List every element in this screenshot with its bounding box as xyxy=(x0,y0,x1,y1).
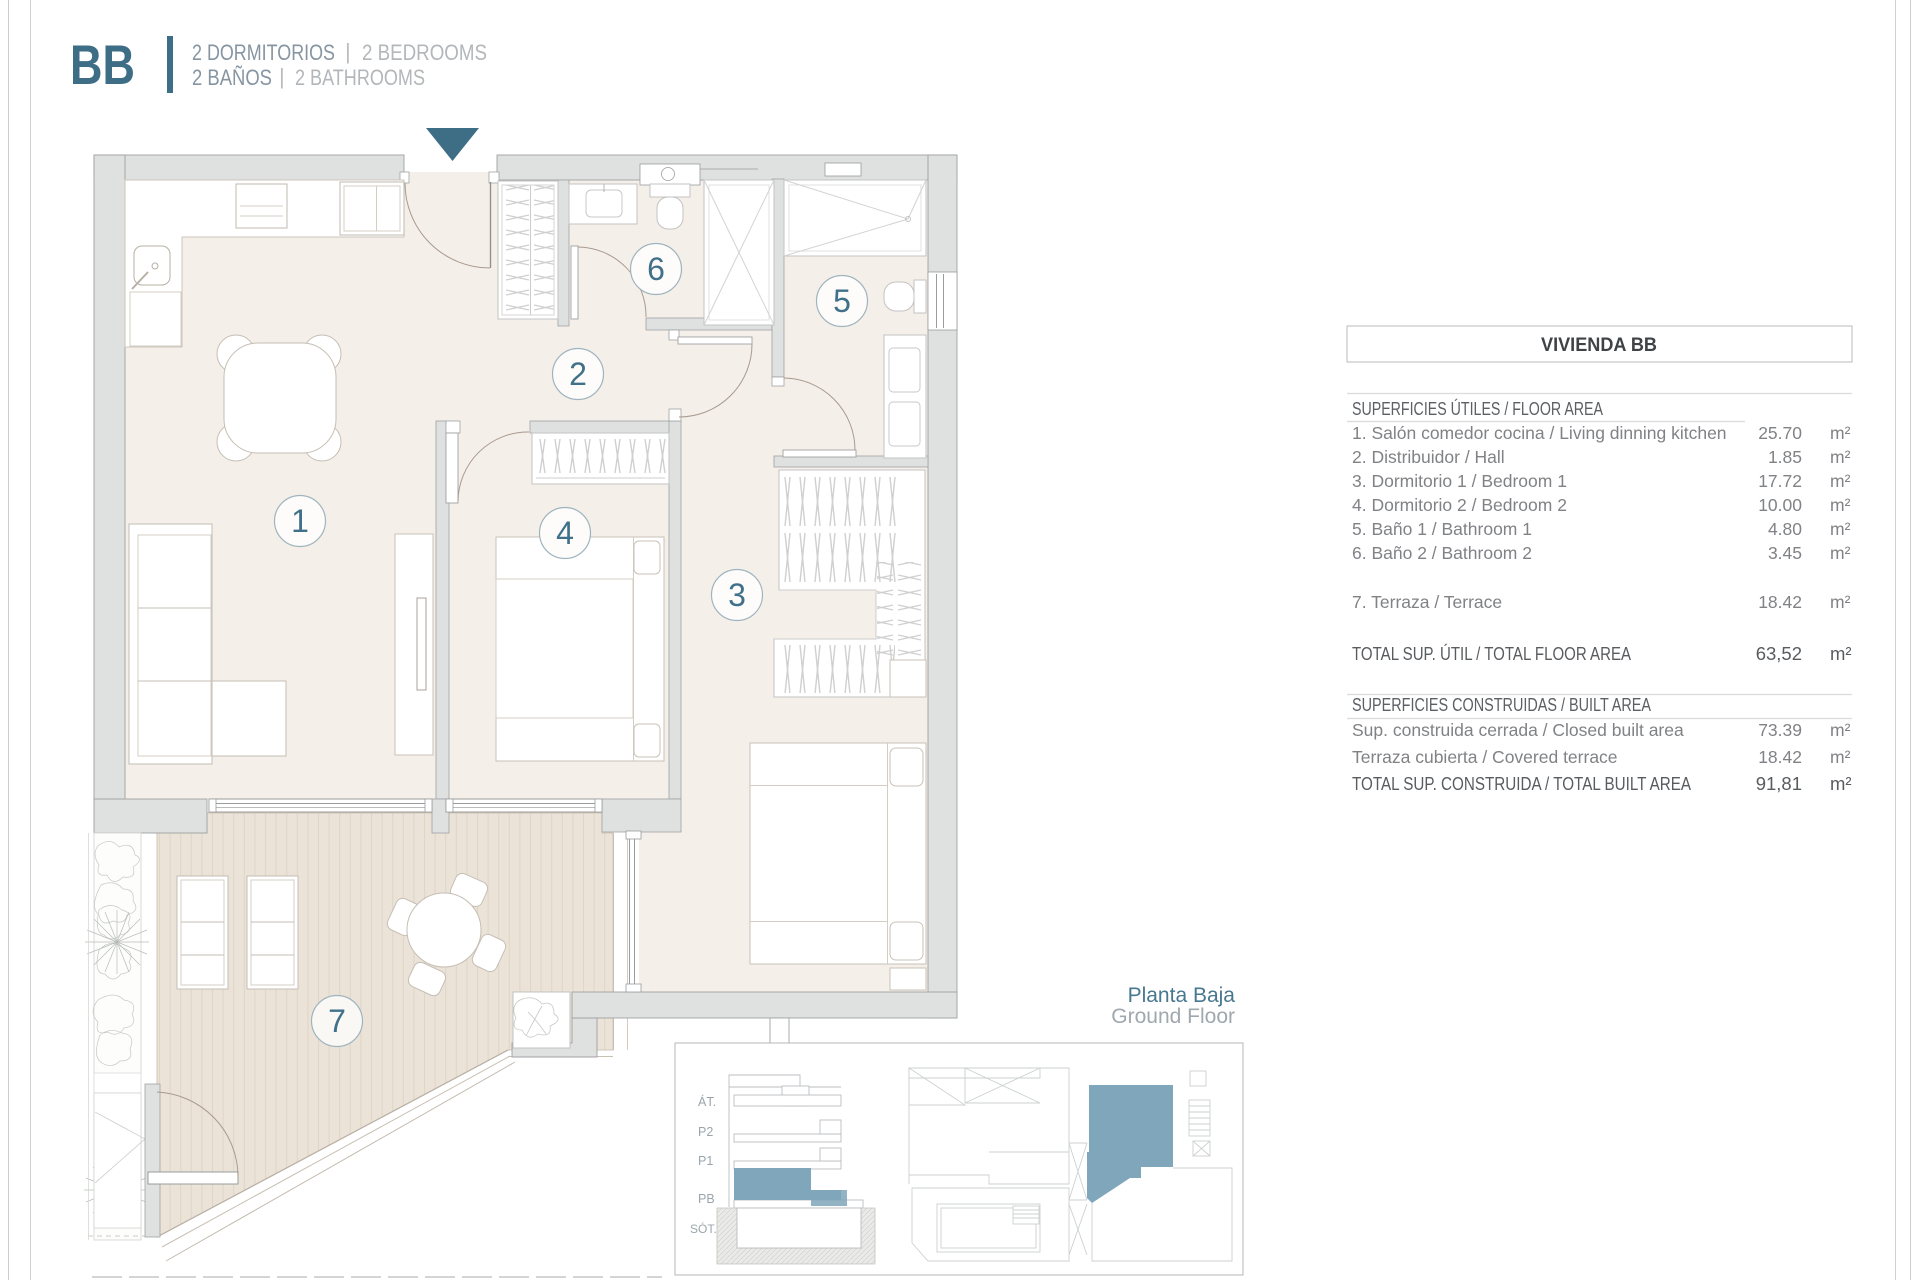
svg-text:4.80: 4.80 xyxy=(1768,519,1802,539)
svg-text:P1: P1 xyxy=(698,1154,713,1168)
svg-text:m²: m² xyxy=(1830,447,1851,467)
svg-text:63,52: 63,52 xyxy=(1756,643,1802,664)
svg-text:1: 1 xyxy=(291,503,309,539)
svg-text:m²: m² xyxy=(1830,773,1852,794)
svg-text:SÓT.: SÓT. xyxy=(690,1221,717,1236)
svg-text:2 BATHROOMS: 2 BATHROOMS xyxy=(295,65,425,90)
svg-text:6. Baño 2 / Bathroom 2: 6. Baño 2 / Bathroom 2 xyxy=(1352,543,1532,563)
svg-text:BB: BB xyxy=(70,33,135,96)
svg-text:TOTAL SUP. CONSTRUIDA / TOTAL: TOTAL SUP. CONSTRUIDA / TOTAL BUILT AREA xyxy=(1352,773,1692,794)
svg-text:m²: m² xyxy=(1830,471,1851,491)
svg-text:25.70: 25.70 xyxy=(1758,423,1802,443)
svg-text:m²: m² xyxy=(1830,519,1851,539)
svg-text:2. Distribuidor / Hall: 2. Distribuidor / Hall xyxy=(1352,447,1505,467)
svg-text:7: 7 xyxy=(328,1003,346,1039)
svg-text:4: 4 xyxy=(556,515,574,551)
svg-text:Sup. construida cerrada / Clos: Sup. construida cerrada / Closed built a… xyxy=(1352,720,1684,740)
svg-text:|: | xyxy=(345,39,351,64)
svg-text:TOTAL SUP. ÚTIL / TOTAL FLOOR: TOTAL SUP. ÚTIL / TOTAL FLOOR AREA xyxy=(1352,643,1632,664)
svg-text:m²: m² xyxy=(1830,543,1851,563)
svg-text:17.72: 17.72 xyxy=(1758,471,1802,491)
svg-text:2: 2 xyxy=(569,356,587,392)
svg-text:4. Dormitorio 2 / Bedroom 2: 4. Dormitorio 2 / Bedroom 2 xyxy=(1352,495,1567,515)
svg-text:2 BAÑOS: 2 BAÑOS xyxy=(192,65,272,90)
svg-text:1.85: 1.85 xyxy=(1768,447,1802,467)
svg-text:3.45: 3.45 xyxy=(1768,543,1802,563)
svg-text:18.42: 18.42 xyxy=(1758,592,1802,612)
svg-text:m²: m² xyxy=(1830,495,1851,515)
svg-text:m²: m² xyxy=(1830,592,1851,612)
svg-text:7. Terraza / Terrace: 7. Terraza / Terrace xyxy=(1352,592,1502,612)
svg-text:2 BEDROOMS: 2 BEDROOMS xyxy=(362,40,487,65)
svg-text:m²: m² xyxy=(1830,423,1851,443)
svg-text:6: 6 xyxy=(647,251,665,287)
svg-text:Terraza cubierta / Covered ter: Terraza cubierta / Covered terrace xyxy=(1352,747,1618,767)
svg-text:73.39: 73.39 xyxy=(1758,720,1802,740)
svg-text:5. Baño 1 / Bathroom 1: 5. Baño 1 / Bathroom 1 xyxy=(1352,519,1532,539)
svg-text:5: 5 xyxy=(833,283,851,319)
svg-text:m²: m² xyxy=(1830,643,1852,664)
svg-text:91,81: 91,81 xyxy=(1756,773,1802,794)
svg-text:PB: PB xyxy=(698,1192,715,1206)
svg-text:18.42: 18.42 xyxy=(1758,747,1802,767)
svg-text:2 DORMITORIOS: 2 DORMITORIOS xyxy=(192,40,335,65)
svg-text:3: 3 xyxy=(728,577,746,613)
svg-text:VIVIENDA BB: VIVIENDA BB xyxy=(1541,335,1657,356)
svg-text:Planta Baja: Planta Baja xyxy=(1128,984,1236,1007)
svg-text:3. Dormitorio 1 / Bedroom 1: 3. Dormitorio 1 / Bedroom 1 xyxy=(1352,471,1567,491)
svg-text:SUPERFICIES ÚTILES / FLOOR ARE: SUPERFICIES ÚTILES / FLOOR AREA xyxy=(1352,398,1603,419)
svg-text:SUPERFICIES CONSTRUIDAS / BUIL: SUPERFICIES CONSTRUIDAS / BUILT AREA xyxy=(1352,695,1651,715)
svg-text:Ground Floor: Ground Floor xyxy=(1111,1005,1235,1028)
svg-text:P2: P2 xyxy=(698,1125,713,1139)
svg-text:m²: m² xyxy=(1830,720,1851,740)
svg-text:m²: m² xyxy=(1830,747,1851,767)
svg-text:ÁT.: ÁT. xyxy=(698,1094,716,1109)
svg-text:10.00: 10.00 xyxy=(1758,495,1802,515)
svg-text:1. Salón comedor cocina / Livi: 1. Salón comedor cocina / Living dinning… xyxy=(1352,423,1727,443)
svg-text:|: | xyxy=(279,64,285,89)
